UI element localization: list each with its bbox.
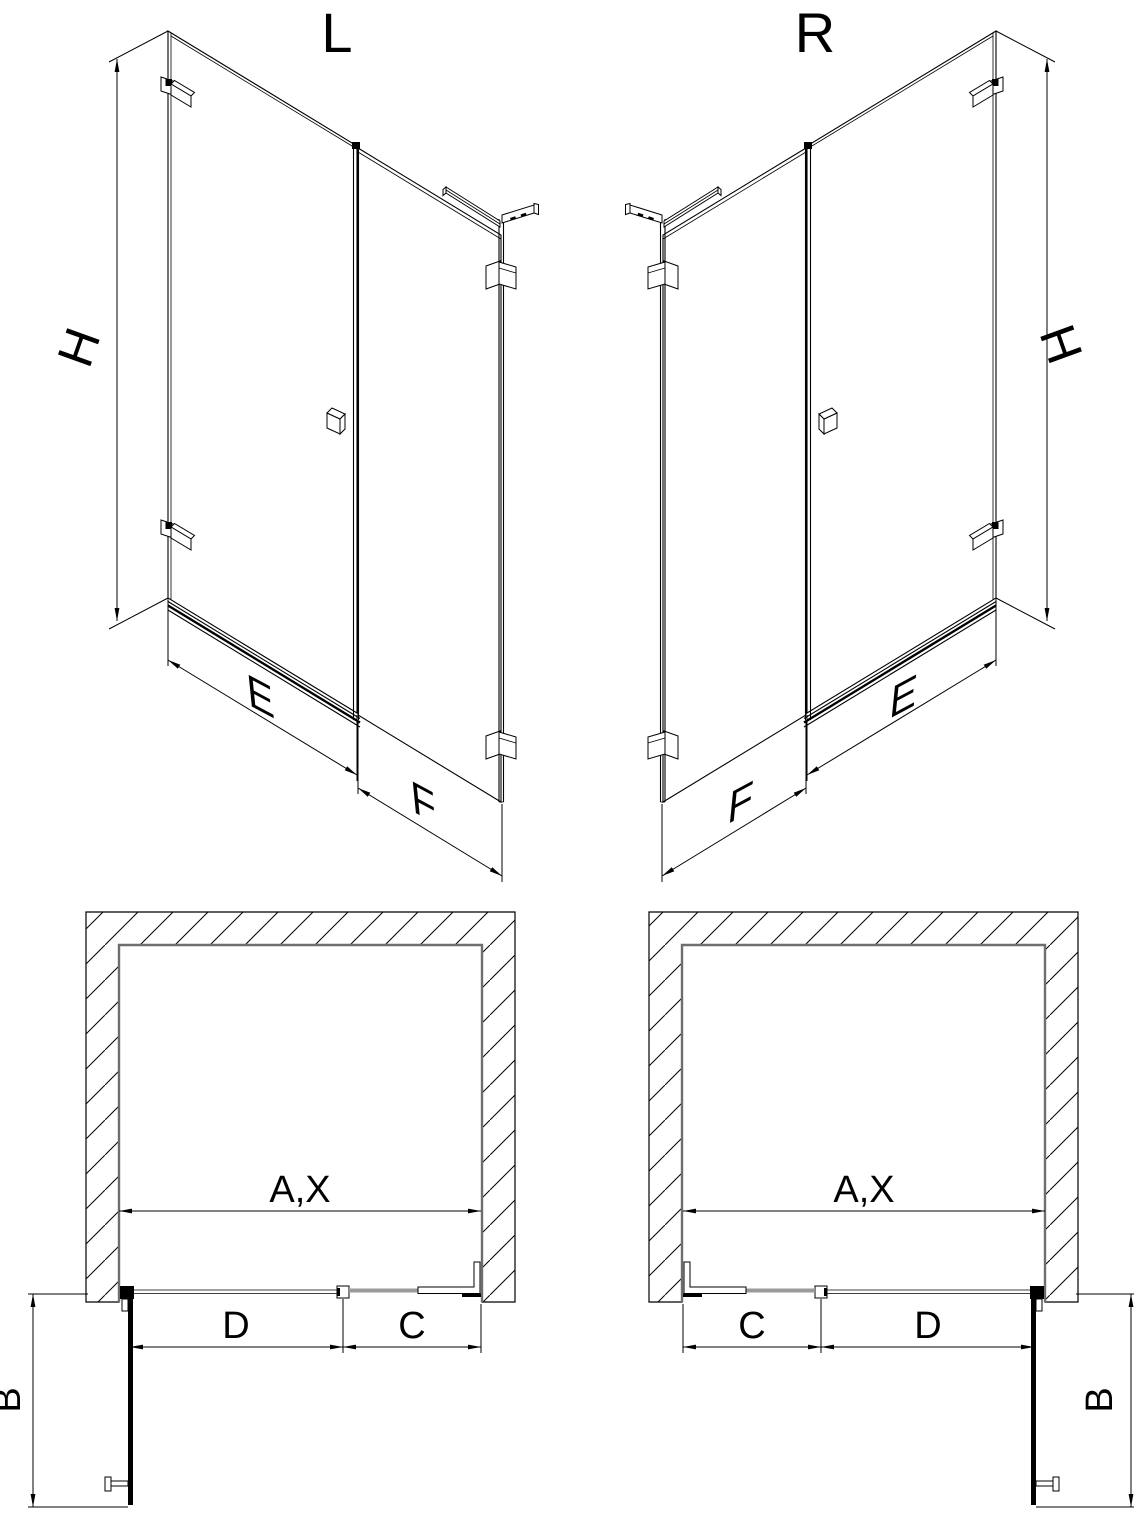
shower-enclosure-technical-drawing: L H E F R H E F A,X D C B A,X C D B — [0, 0, 1134, 1516]
plan-wall-left — [86, 912, 515, 1302]
dim-label-height-left: H — [47, 321, 112, 374]
dim-label-depth-left: B — [0, 1387, 29, 1412]
dim-label-panel-plan-left: C — [398, 1305, 425, 1347]
dim-label-door-plan-left: D — [222, 1305, 249, 1347]
dim-label-opening-left: A,X — [269, 1169, 330, 1211]
view-label-left: L — [321, 1, 352, 64]
plan-wall-right — [649, 912, 1078, 1302]
dim-label-height-right: H — [1029, 318, 1094, 371]
dim-label-door-plan-right: D — [914, 1305, 941, 1347]
dim-label-panel-width-right: F — [726, 769, 756, 834]
plan-view-right: A,X C D B — [649, 912, 1134, 1507]
drawing-canvas: L H E F R H E F A,X D C B A,X C D B — [0, 0, 1134, 1516]
dim-label-opening-right: A,X — [833, 1169, 894, 1211]
dim-label-panel-width-left: F — [408, 769, 438, 834]
plan-view-left: A,X D C B — [0, 912, 515, 1507]
dim-label-depth-right: B — [1079, 1387, 1121, 1412]
iso-view-left: L H E F — [47, 1, 539, 882]
view-label-right: R — [795, 1, 835, 64]
dim-label-panel-plan-right: C — [738, 1305, 765, 1347]
iso-view-right: R H E F — [626, 1, 1094, 882]
